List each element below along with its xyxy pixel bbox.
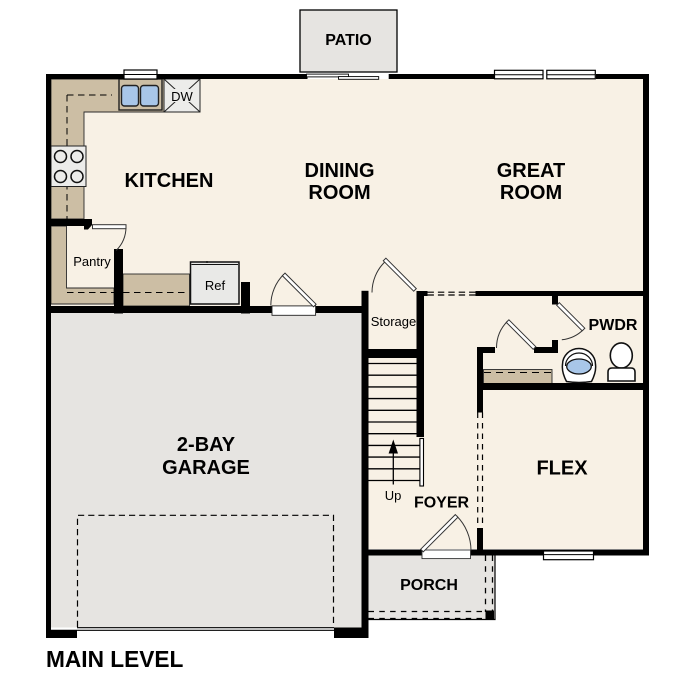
svg-text:PWDR: PWDR — [589, 317, 638, 334]
svg-text:PORCH: PORCH — [400, 577, 458, 594]
svg-text:2-BAY: 2-BAY — [177, 434, 236, 456]
svg-text:GARAGE: GARAGE — [162, 457, 250, 479]
svg-text:KITCHEN: KITCHEN — [125, 170, 214, 192]
svg-text:FLEX: FLEX — [536, 458, 588, 480]
svg-text:ROOM: ROOM — [500, 182, 562, 204]
svg-text:GREAT: GREAT — [497, 160, 566, 182]
svg-text:MAIN LEVEL: MAIN LEVEL — [46, 646, 184, 672]
svg-text:Storage: Storage — [371, 314, 417, 329]
svg-text:Ref: Ref — [205, 278, 226, 293]
svg-text:DW: DW — [171, 89, 193, 104]
svg-text:ROOM: ROOM — [308, 182, 370, 204]
svg-text:PATIO: PATIO — [325, 32, 372, 49]
svg-text:FOYER: FOYER — [414, 495, 470, 512]
svg-text:Pantry: Pantry — [73, 254, 111, 269]
svg-text:Up: Up — [385, 488, 402, 503]
svg-text:DINING: DINING — [305, 160, 375, 182]
